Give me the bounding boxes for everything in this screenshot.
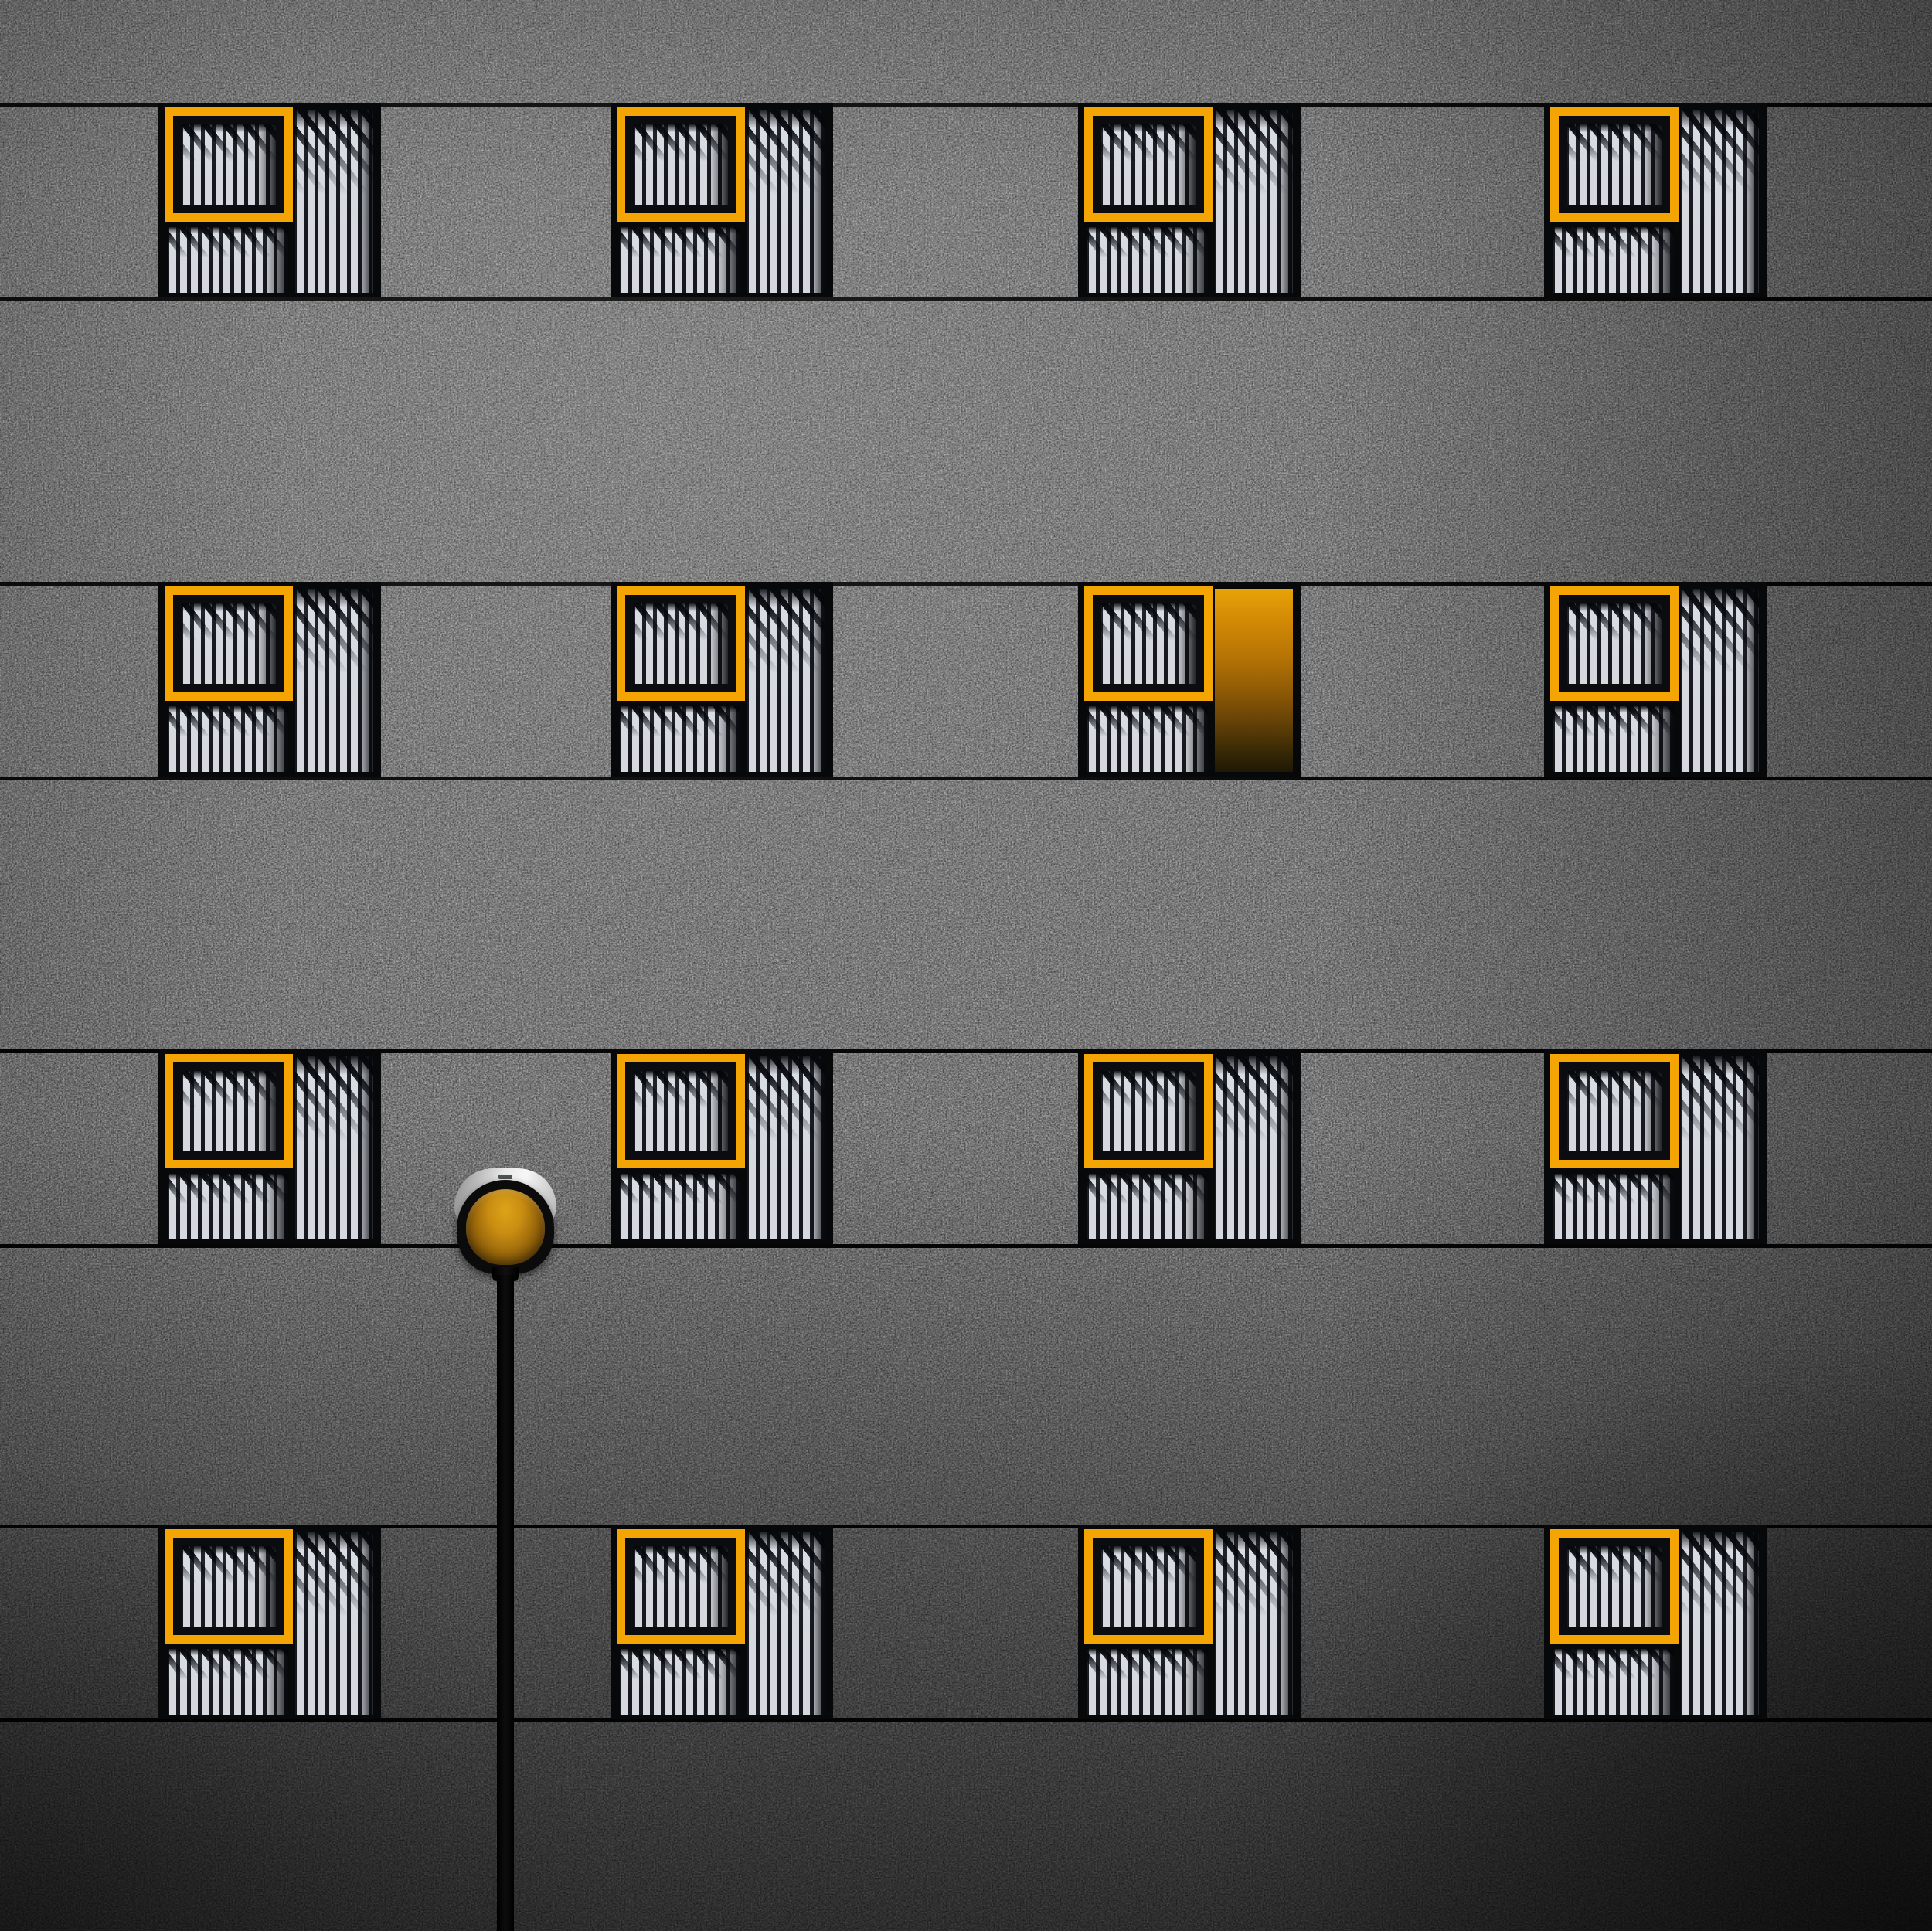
- lower-blind-panel: [620, 706, 740, 772]
- yellow-frame: [1550, 107, 1679, 222]
- lamp-pole: [497, 1275, 514, 1931]
- yellow-frame: [617, 1054, 745, 1168]
- yellow-frame: [617, 107, 745, 222]
- lamp-head: [457, 1180, 554, 1274]
- yellow-frame: [165, 586, 293, 701]
- window-r3-c2: [611, 1049, 833, 1244]
- framed-blind-panel: [1567, 124, 1662, 205]
- lit-glowing-panel: [1215, 589, 1293, 772]
- framed-blind-panel: [1101, 603, 1196, 684]
- yellow-frame: [1550, 1054, 1679, 1168]
- window-r2-c3: [1078, 582, 1301, 777]
- window-r2-c2: [611, 582, 833, 777]
- framed-blind-panel-mount: [629, 1066, 733, 1156]
- yellow-frame: [1550, 1529, 1679, 1644]
- lamp-cap-notch: [498, 1175, 512, 1179]
- yellow-frame: [165, 107, 293, 222]
- panel-seam-2: [0, 297, 1932, 301]
- lower-blind-panel: [168, 1174, 288, 1239]
- framed-blind-panel: [634, 124, 728, 205]
- lower-blind-panel: [1087, 227, 1208, 293]
- framed-blind-panel-mount: [1563, 599, 1666, 688]
- window-r3-c4: [1544, 1049, 1767, 1244]
- framed-blind-panel-mount: [177, 1066, 281, 1156]
- framed-blind-panel: [182, 603, 276, 684]
- lower-blind-panel: [1087, 1174, 1208, 1239]
- yellow-frame: [165, 1054, 293, 1168]
- framed-blind-panel-mount: [629, 599, 733, 688]
- framed-blind-panel-mount: [1097, 599, 1200, 688]
- side-blind-panel: [295, 1532, 373, 1715]
- framed-blind-panel: [182, 1071, 276, 1151]
- framed-blind-panel-mount: [177, 1542, 281, 1631]
- lower-blind-panel: [620, 227, 740, 293]
- yellow-frame: [617, 586, 745, 701]
- window-r3-c1: [158, 1049, 381, 1244]
- yellow-frame: [165, 1529, 293, 1644]
- framed-blind-panel-mount: [1097, 1066, 1200, 1156]
- side-blind-panel: [1681, 1532, 1759, 1715]
- side-blind-panel: [1215, 1532, 1293, 1715]
- side-blind-panel: [747, 1532, 825, 1715]
- window-r4-c1: [158, 1525, 381, 1719]
- lower-blind-panel: [1553, 706, 1674, 772]
- framed-blind-panel: [1101, 1546, 1196, 1627]
- framed-blind-panel: [634, 1546, 728, 1627]
- framed-blind-panel-mount: [1097, 120, 1200, 209]
- framed-blind-panel: [1101, 124, 1196, 205]
- framed-blind-panel: [1567, 603, 1662, 684]
- side-blind-panel: [1215, 1056, 1293, 1239]
- side-blind-panel: [295, 1056, 373, 1239]
- framed-blind-panel-mount: [1563, 1542, 1666, 1631]
- side-blind-panel: [1215, 110, 1293, 293]
- window-r4-c2: [611, 1525, 833, 1719]
- side-blind-panel: [747, 1056, 825, 1239]
- lower-blind-panel: [620, 1174, 740, 1239]
- framed-blind-panel-mount: [177, 599, 281, 688]
- lamp-lens: [466, 1189, 545, 1265]
- panel-seam-6: [0, 1244, 1932, 1248]
- framed-blind-panel: [1101, 1071, 1196, 1151]
- window-r1-c3: [1078, 103, 1301, 297]
- window-r2-c1: [158, 582, 381, 777]
- framed-blind-panel: [634, 603, 728, 684]
- window-r1-c2: [611, 103, 833, 297]
- lower-blind-panel: [1087, 1649, 1208, 1715]
- yellow-frame: [1084, 586, 1213, 701]
- building-facade-photo: [0, 0, 1932, 1931]
- window-r1-c4: [1544, 103, 1767, 297]
- side-blind-panel: [747, 110, 825, 293]
- window-r2-c4: [1544, 582, 1767, 777]
- framed-blind-panel-mount: [629, 120, 733, 209]
- framed-blind-panel: [1567, 1071, 1662, 1151]
- yellow-frame: [1084, 1529, 1213, 1644]
- window-r1-c1: [158, 103, 381, 297]
- framed-blind-panel: [182, 124, 276, 205]
- yellow-frame: [1550, 586, 1679, 701]
- window-r4-c3: [1078, 1525, 1301, 1719]
- framed-blind-panel-mount: [1097, 1542, 1200, 1631]
- side-blind-panel: [1681, 589, 1759, 772]
- side-blind-panel: [747, 589, 825, 772]
- panel-seam-4: [0, 777, 1932, 780]
- framed-blind-panel-mount: [177, 120, 281, 209]
- lower-blind-panel: [1553, 1174, 1674, 1239]
- framed-blind-panel: [182, 1546, 276, 1627]
- framed-blind-panel-mount: [1563, 120, 1666, 209]
- framed-blind-panel: [1567, 1546, 1662, 1627]
- side-blind-panel: [295, 110, 373, 293]
- lower-blind-panel: [620, 1649, 740, 1715]
- yellow-frame: [617, 1529, 745, 1644]
- yellow-frame: [1084, 1054, 1213, 1168]
- lower-blind-panel: [168, 1649, 288, 1715]
- lower-blind-panel: [1087, 706, 1208, 772]
- lower-blind-panel: [168, 706, 288, 772]
- framed-blind-panel-mount: [1563, 1066, 1666, 1156]
- framed-blind-panel-mount: [629, 1542, 733, 1631]
- framed-blind-panel: [634, 1071, 728, 1151]
- side-blind-panel: [1681, 1056, 1759, 1239]
- lower-blind-panel: [168, 227, 288, 293]
- lower-blind-panel: [1553, 227, 1674, 293]
- side-blind-panel: [1681, 110, 1759, 293]
- window-r4-c4: [1544, 1525, 1767, 1719]
- yellow-frame: [1084, 107, 1213, 222]
- window-r3-c3: [1078, 1049, 1301, 1244]
- lower-blind-panel: [1553, 1649, 1674, 1715]
- side-blind-panel: [295, 589, 373, 772]
